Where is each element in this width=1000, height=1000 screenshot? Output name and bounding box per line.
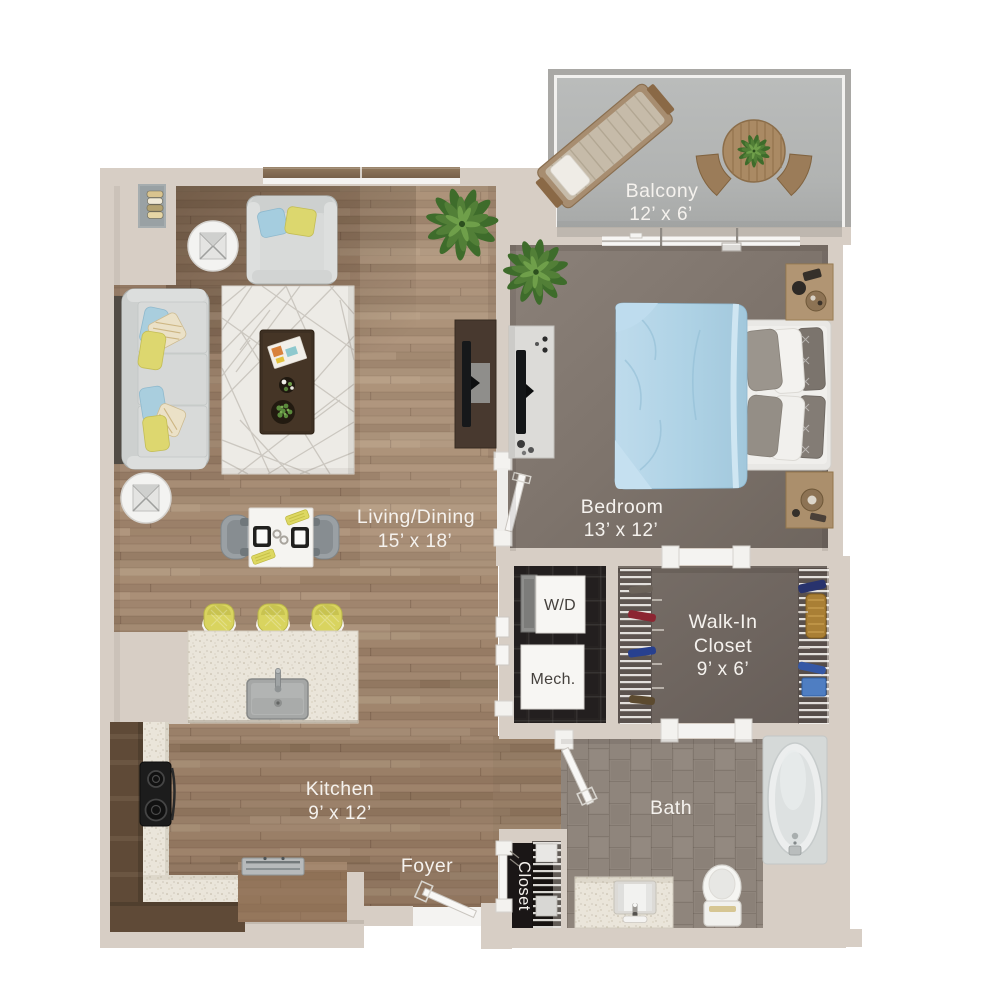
svg-text:Foyer: Foyer	[401, 855, 453, 877]
svg-text:Closet: Closet	[515, 861, 533, 911]
svg-text:13’ x 12’: 13’ x 12’	[584, 520, 659, 541]
svg-text:Kitchen: Kitchen	[306, 778, 375, 800]
svg-text:9’ x 12’: 9’ x 12’	[308, 803, 372, 824]
svg-text:15’ x 18’: 15’ x 18’	[378, 531, 453, 552]
svg-text:12’ x 6’: 12’ x 6’	[629, 204, 693, 225]
svg-text:Closet: Closet	[694, 635, 752, 657]
svg-text:Bedroom: Bedroom	[581, 496, 664, 518]
svg-text:9’ x 6’: 9’ x 6’	[697, 659, 749, 680]
svg-text:Mech.: Mech.	[530, 671, 575, 688]
svg-text:Walk-In: Walk-In	[689, 611, 758, 633]
svg-text:Balcony: Balcony	[626, 180, 699, 202]
svg-text:Living/Dining: Living/Dining	[357, 506, 475, 528]
svg-text:W/D: W/D	[544, 597, 576, 614]
svg-text:Bath: Bath	[650, 797, 692, 819]
